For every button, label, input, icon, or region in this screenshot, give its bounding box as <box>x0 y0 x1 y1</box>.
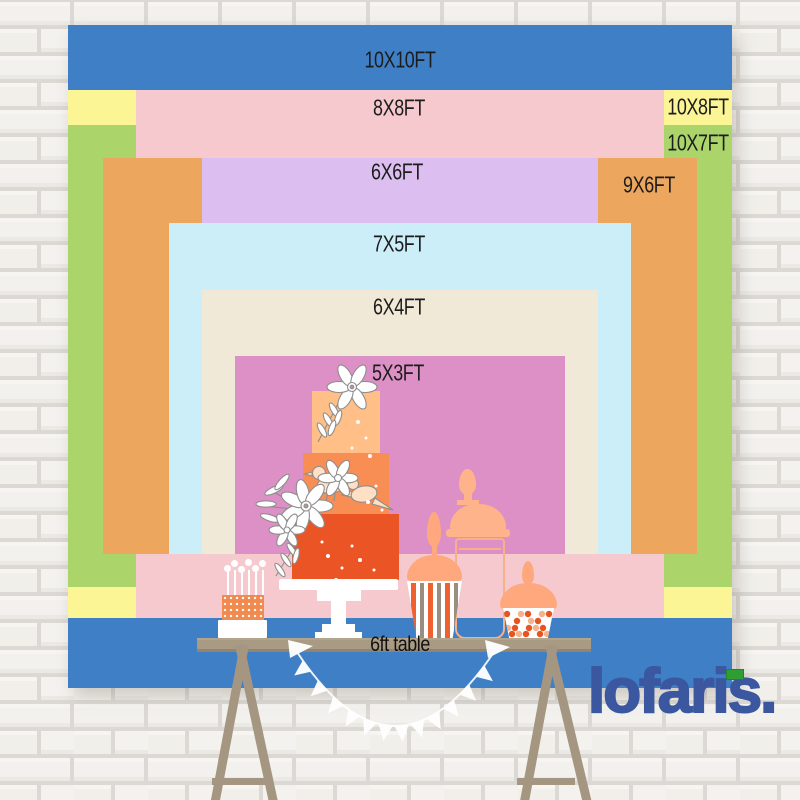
table-leg-crossbar <box>517 778 575 785</box>
jar-finial <box>427 512 441 547</box>
backdrop-size-chart: 10X10FT 8X8FT 10X8FT 10X7FT 6X6FT 9X6FT … <box>0 0 800 800</box>
table-leg-crossbar <box>212 778 269 785</box>
brand-dot: . <box>760 657 775 726</box>
cake-pop-stick <box>234 570 236 597</box>
size-label-10x7ft: 10X7FT <box>667 130 728 157</box>
lofaris-logo: lofaris. <box>588 661 775 723</box>
cake-pop <box>231 560 238 567</box>
size-label-8x8ft: 8X8FT <box>373 95 425 122</box>
logo-green-tab-icon <box>726 669 744 680</box>
size-label-10x10ft: 10X10FT <box>364 47 435 74</box>
cake-stand-stem <box>331 600 346 626</box>
jar-glass-outline <box>455 538 505 639</box>
jar-lid-skirt <box>446 529 510 537</box>
size-label-10x8ft: 10X8FT <box>667 94 728 121</box>
size-label-9x6ft: 9X6FT <box>623 172 675 199</box>
jar-finial <box>522 561 534 585</box>
size-label-6x4ft: 6X4FT <box>373 294 425 321</box>
size-label-7x5ft: 7X5FT <box>373 231 425 258</box>
cake-pop <box>224 565 231 572</box>
cake-pops-base <box>218 620 267 638</box>
cake-pop-stick <box>227 570 229 597</box>
brand-name: lofaris <box>588 657 760 726</box>
size-label-6x6ft: 6X6FT <box>371 159 423 186</box>
flowers-and-birds-decoration <box>240 360 420 600</box>
jar-glass-rim <box>459 548 501 550</box>
pennant-bunting <box>280 630 520 750</box>
flower-top <box>327 363 377 412</box>
